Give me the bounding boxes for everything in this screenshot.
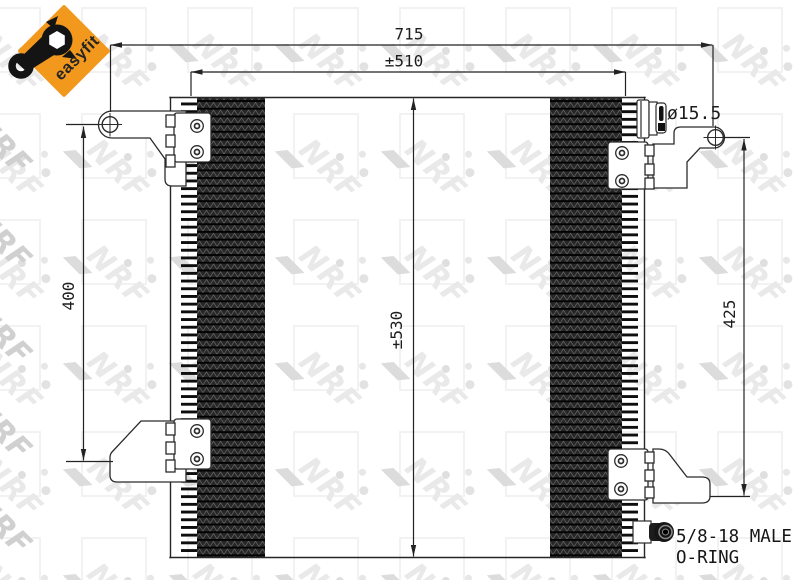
outlet-fitting xyxy=(633,521,674,543)
inlet-fitting xyxy=(637,100,666,138)
dim-core-width-label: ±510 xyxy=(385,52,424,71)
condenser-technical-drawing: NRF NRF NRF NRF NRF NRF xyxy=(0,0,800,580)
hole-diameter-label: ø15.5 xyxy=(667,103,721,124)
dim-overall-width-label: 715 xyxy=(395,25,424,44)
dim-left-height-label: 400 xyxy=(59,282,78,311)
dim-right-height-label: 425 xyxy=(720,300,739,329)
fitting-spec-line2: O-RING xyxy=(676,548,739,568)
catalog-drawing-page: NRF NRF NRF NRF NRF NRF xyxy=(0,0,800,580)
fin-band-left xyxy=(197,98,265,558)
fitting-spec-line1: 5/8-18 MALE xyxy=(676,527,792,547)
dim-core-height-label: ±530 xyxy=(387,311,406,350)
